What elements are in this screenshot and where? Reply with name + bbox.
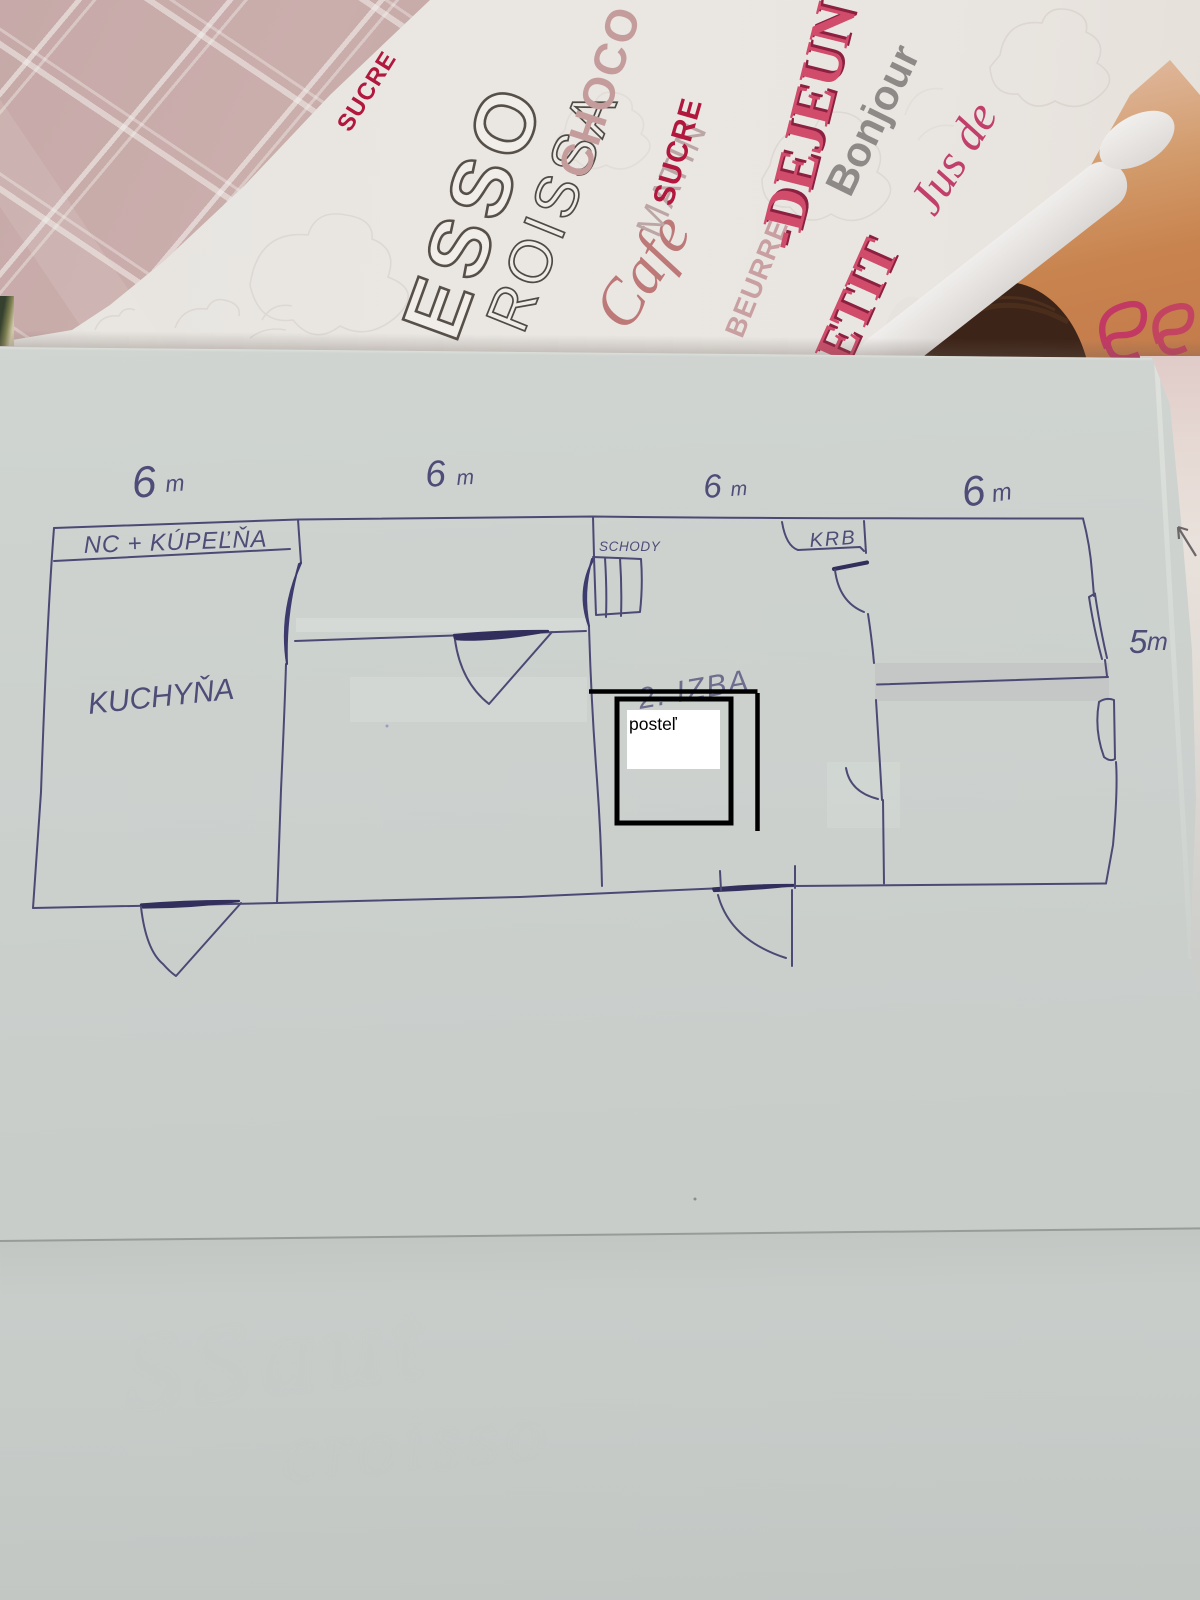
svg-text:KUCHYŇA: KUCHYŇA [86,673,235,721]
svg-text:5: 5 [1129,623,1148,660]
svg-text:KRB: KRB [809,527,858,552]
svg-text:6: 6 [130,457,159,508]
svg-text:6: 6 [958,466,989,516]
svg-text:m: m [1147,628,1168,656]
svg-text:m: m [990,478,1014,508]
svg-text:6: 6 [424,453,448,495]
svg-text:m: m [164,469,185,497]
svg-text:m: m [456,466,475,490]
svg-text:m: m [730,478,748,501]
svg-text:SCHODY: SCHODY [599,539,661,554]
svg-text:6: 6 [702,467,724,505]
svg-text:NC + KÚPEĽŇA: NC + KÚPEĽŇA [83,526,268,559]
svg-text:posteľ: posteľ [629,714,678,734]
